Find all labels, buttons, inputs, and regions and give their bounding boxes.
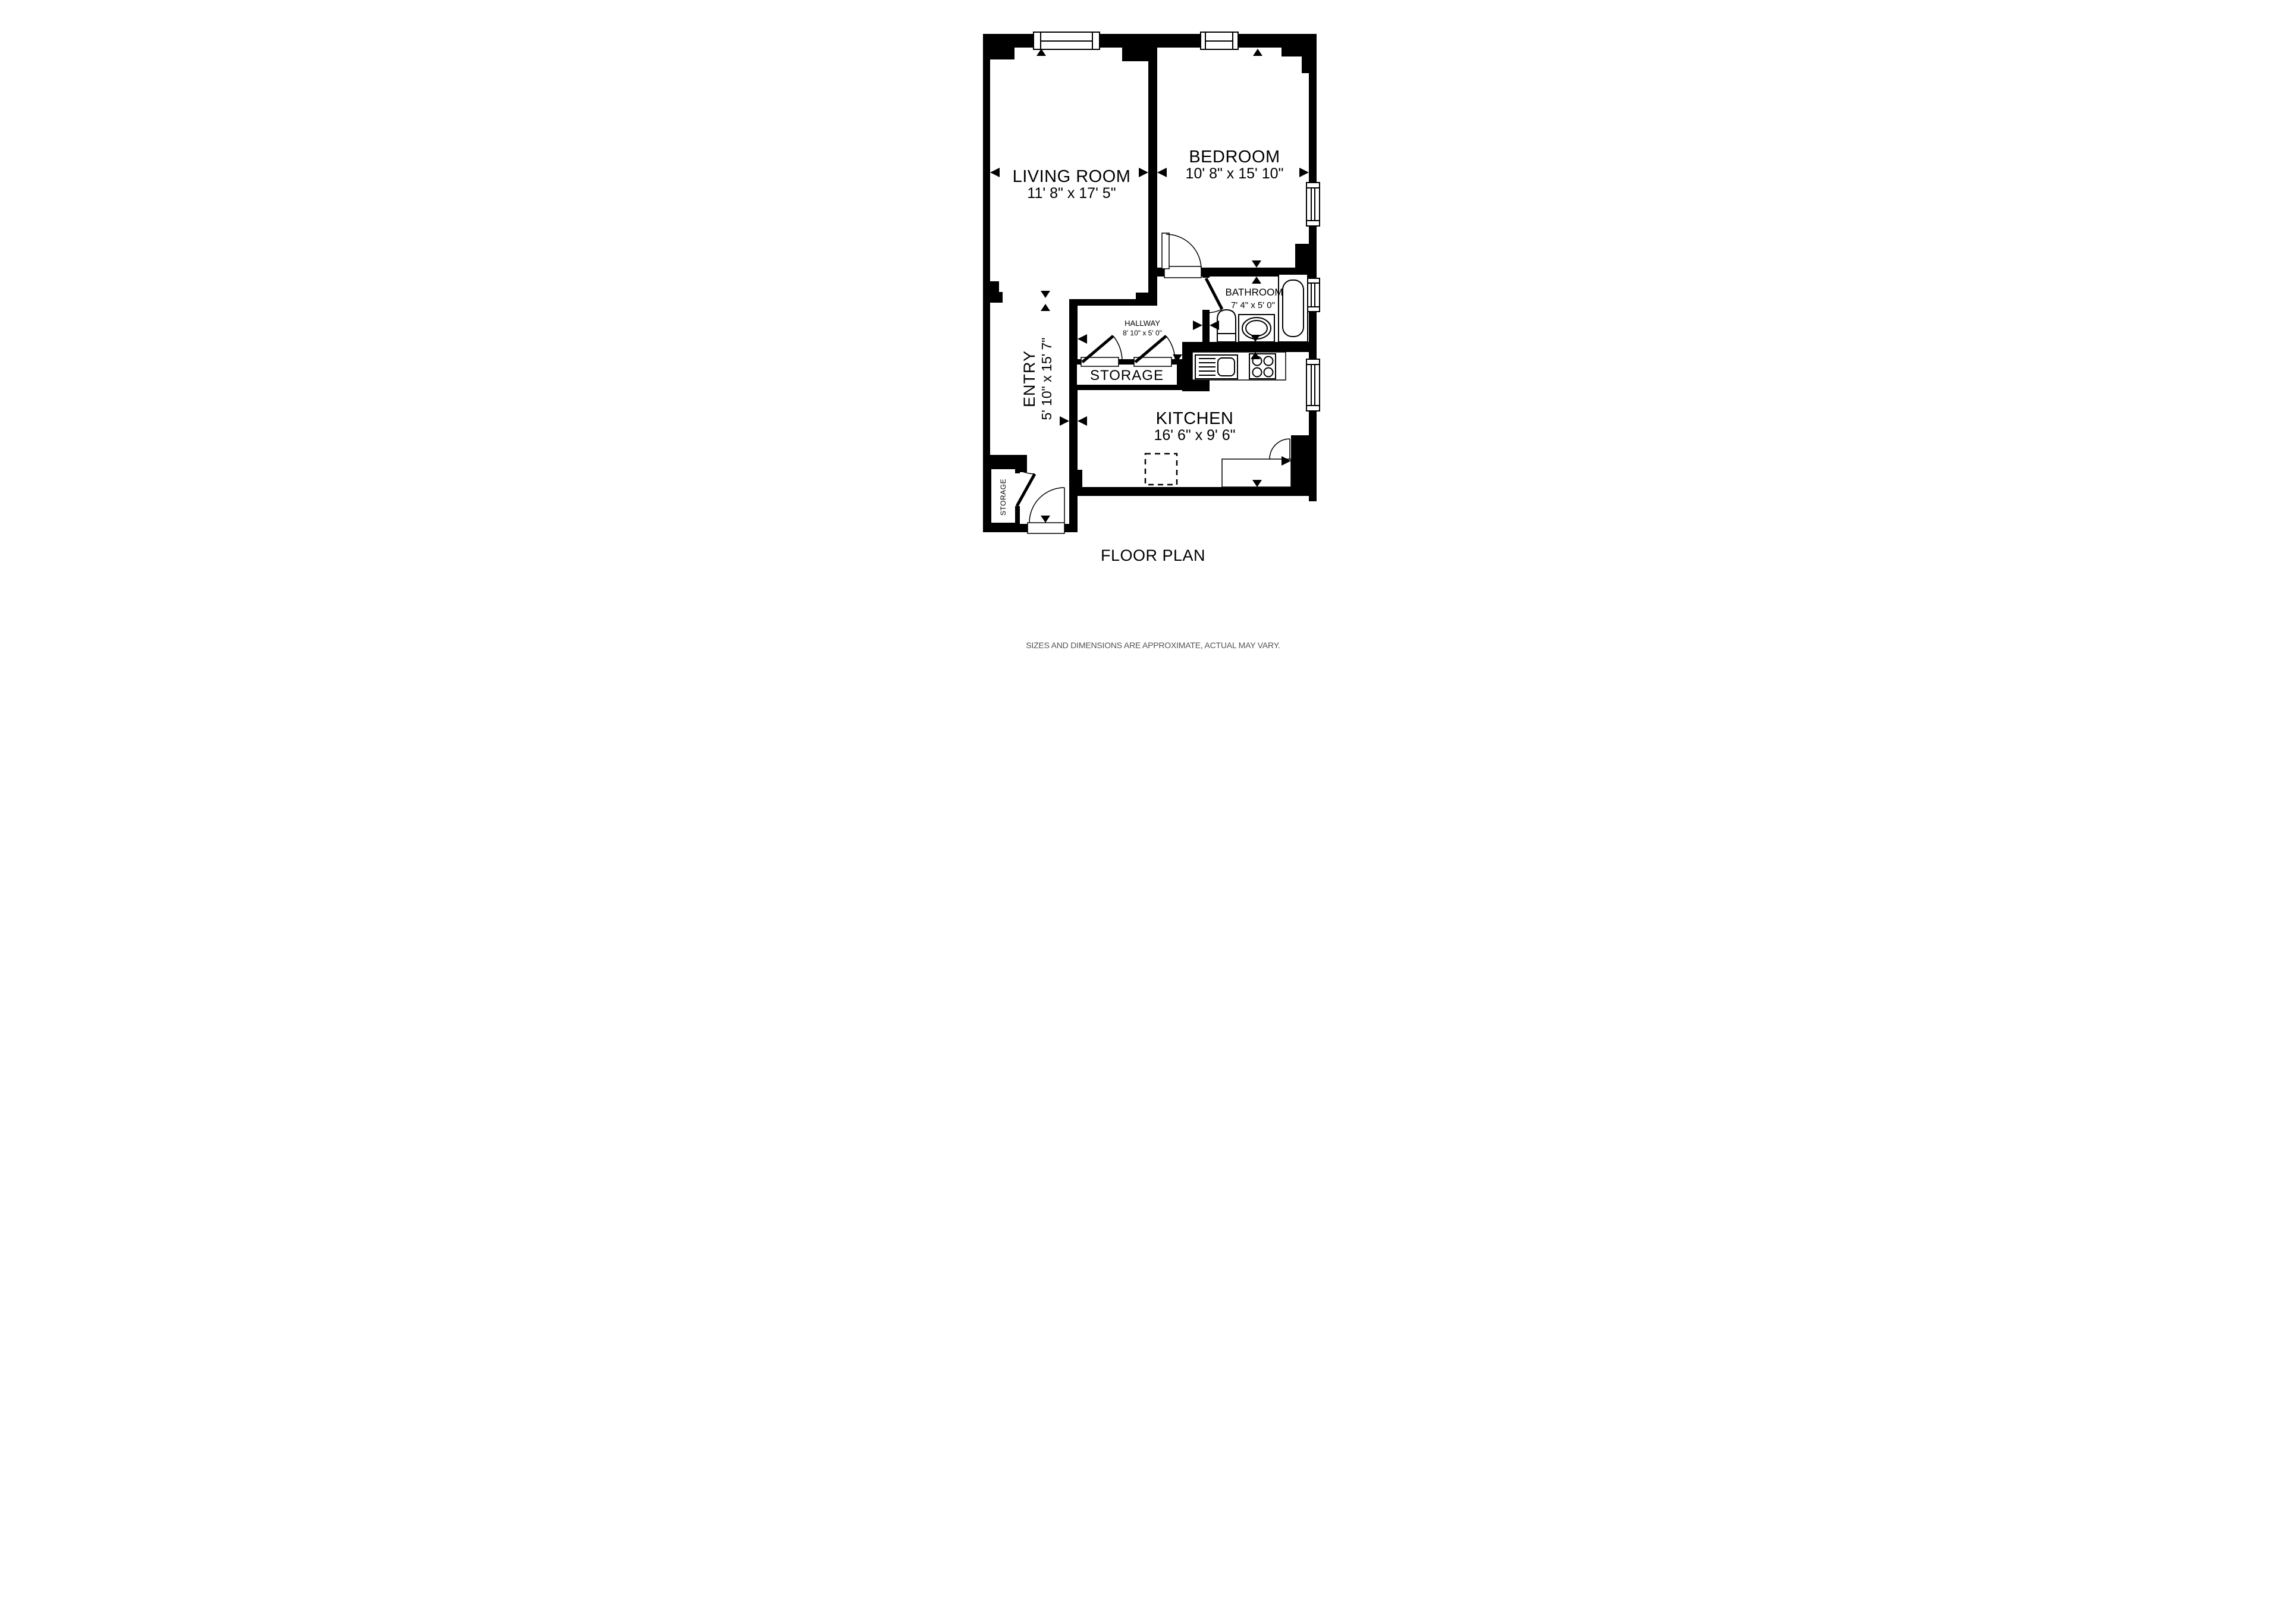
bedroom-label: BEDROOM bbox=[1189, 147, 1280, 167]
bathroom-door bbox=[1202, 278, 1222, 313]
kitchen-island-dashed bbox=[1145, 454, 1177, 485]
marker-right-wall-bedroom bbox=[1299, 168, 1309, 177]
bathroom-bottom-wall bbox=[1202, 342, 1309, 352]
bedroom-right-window bbox=[1306, 183, 1320, 226]
living-bedroom-divider bbox=[1148, 48, 1157, 299]
kitchen-bottom-wall bbox=[1069, 487, 1317, 496]
divider-top-step bbox=[1122, 48, 1157, 61]
entry-door bbox=[1028, 488, 1064, 533]
left-wall-notch-b bbox=[990, 292, 1003, 303]
toilet-symbol bbox=[1217, 310, 1236, 342]
bathroom-dims: 7' 4" x 5' 0" bbox=[1231, 300, 1275, 310]
hallway-dims: 8' 10" x 5' 0" bbox=[1123, 329, 1162, 337]
entry-storage-label: STORAGE bbox=[999, 479, 1007, 516]
storage-top-band bbox=[983, 455, 1027, 462]
entry-label: ENTRY bbox=[1020, 350, 1038, 407]
entry-dims: 5' 10" x 15' 7" bbox=[1039, 338, 1054, 420]
walls bbox=[983, 34, 1317, 532]
marker-entry-divider-right bbox=[1078, 416, 1087, 426]
bottom-right-corner-block bbox=[1291, 435, 1317, 496]
hallway-label: HALLWAY bbox=[1125, 319, 1160, 328]
kitchen-label: KITCHEN bbox=[1156, 409, 1234, 428]
marker-left-wall-living bbox=[990, 168, 1000, 177]
floor-plan-drawing: LIVING ROOM 11' 8" x 17' 5" BEDROOM 10' … bbox=[689, 0, 1607, 650]
floor-plan-page: LIVING ROOM 11' 8" x 17' 5" BEDROOM 10' … bbox=[689, 0, 1607, 650]
kitchen-door bbox=[1270, 439, 1290, 459]
living-room-label: LIVING ROOM bbox=[1013, 167, 1131, 186]
marker-divider-living bbox=[1139, 168, 1148, 177]
marker-bedroom-bottom-up bbox=[1252, 277, 1261, 284]
marker-bedroom-window bbox=[1253, 49, 1262, 56]
top-right-block-b bbox=[1302, 56, 1317, 73]
plan-title: FLOOR PLAN bbox=[1101, 546, 1205, 564]
bedroom-top-window bbox=[1201, 32, 1238, 49]
storage-closet-label: STORAGE bbox=[1090, 367, 1164, 384]
marker-entry-divider-left bbox=[1060, 416, 1069, 426]
kitchen-dims: 16' 6" x 9' 6" bbox=[1154, 427, 1235, 444]
kitchen-right-window bbox=[1306, 359, 1320, 411]
left-wall-notch-a bbox=[990, 281, 999, 292]
bathroom-label: BATHROOM bbox=[1226, 287, 1283, 298]
marker-bedroom-bottom-down bbox=[1252, 260, 1261, 268]
living-bottom-thick bbox=[1136, 293, 1157, 306]
living-room-dims: 11' 8" x 17' 5" bbox=[1027, 185, 1116, 202]
marker-hallway-left bbox=[1078, 334, 1087, 344]
marker-living-entry-down bbox=[1041, 291, 1050, 298]
entry-kitchen-divider bbox=[1069, 299, 1078, 532]
bedroom-door bbox=[1162, 233, 1201, 278]
disclaimer-text: SIZES AND DIMENSIONS ARE APPROXIMATE, AC… bbox=[1026, 640, 1280, 650]
bedroom-dims: 10' 8" x 15' 10" bbox=[1186, 165, 1284, 182]
marker-entry-door bbox=[1041, 516, 1050, 523]
kitchen-sink-symbol bbox=[1195, 355, 1237, 379]
top-right-block-a bbox=[1282, 48, 1317, 56]
marker-divider-bedroom bbox=[1157, 168, 1167, 177]
marker-bath-wall-left bbox=[1193, 321, 1202, 330]
bathtub-symbol bbox=[1279, 274, 1308, 342]
marker-living-entry-up bbox=[1041, 304, 1050, 311]
living-room-window bbox=[1034, 32, 1100, 49]
bathroom-right-window bbox=[1306, 278, 1320, 312]
marker-bath-wall-right bbox=[1210, 321, 1219, 330]
